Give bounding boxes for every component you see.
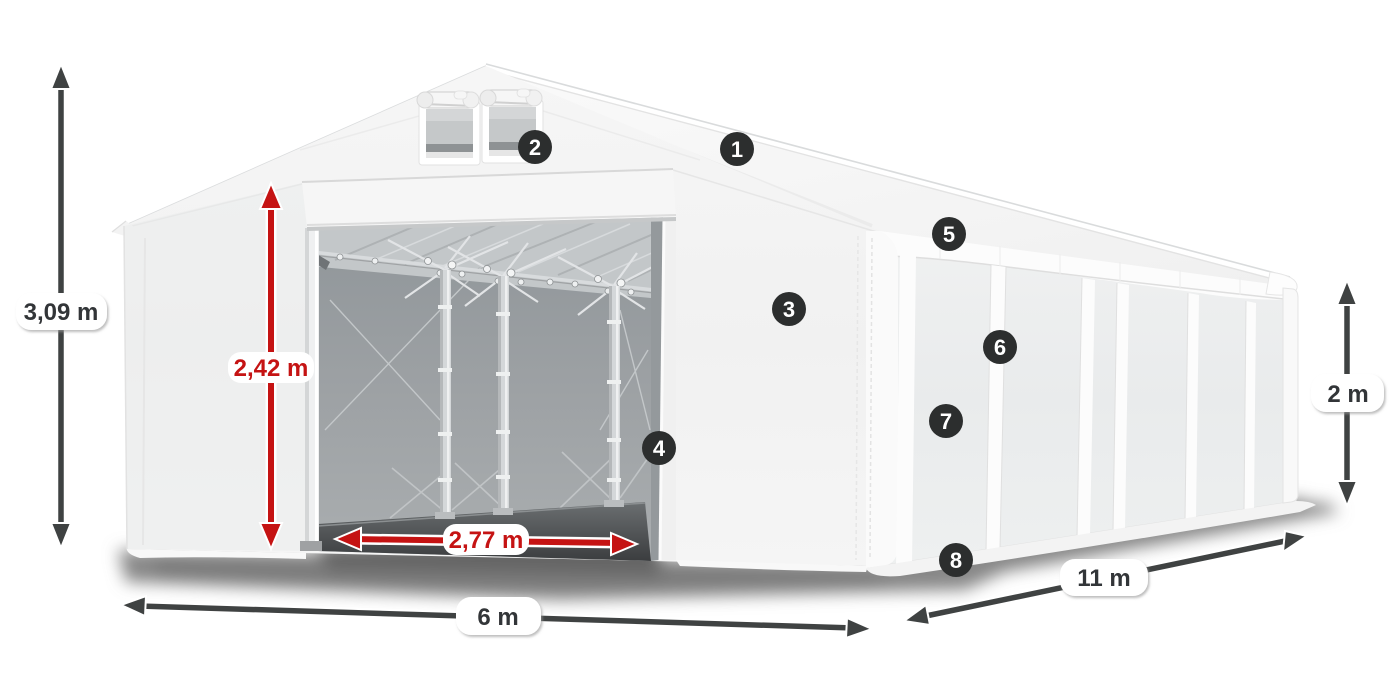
svg-text:2,42 m: 2,42 m [234, 355, 309, 382]
svg-text:5: 5 [943, 222, 955, 247]
svg-text:2: 2 [529, 135, 541, 160]
svg-text:6: 6 [994, 335, 1006, 360]
svg-text:8: 8 [950, 548, 962, 573]
svg-text:3: 3 [783, 297, 795, 322]
svg-text:6 m: 6 m [477, 604, 518, 631]
svg-text:3,09 m: 3,09 m [24, 299, 99, 326]
svg-text:7: 7 [940, 409, 952, 434]
svg-text:2 m: 2 m [1327, 381, 1368, 408]
svg-text:4: 4 [653, 436, 666, 461]
svg-text:11 m: 11 m [1077, 565, 1130, 592]
svg-text:2,77 m: 2,77 m [449, 527, 524, 554]
svg-text:1: 1 [731, 137, 743, 162]
